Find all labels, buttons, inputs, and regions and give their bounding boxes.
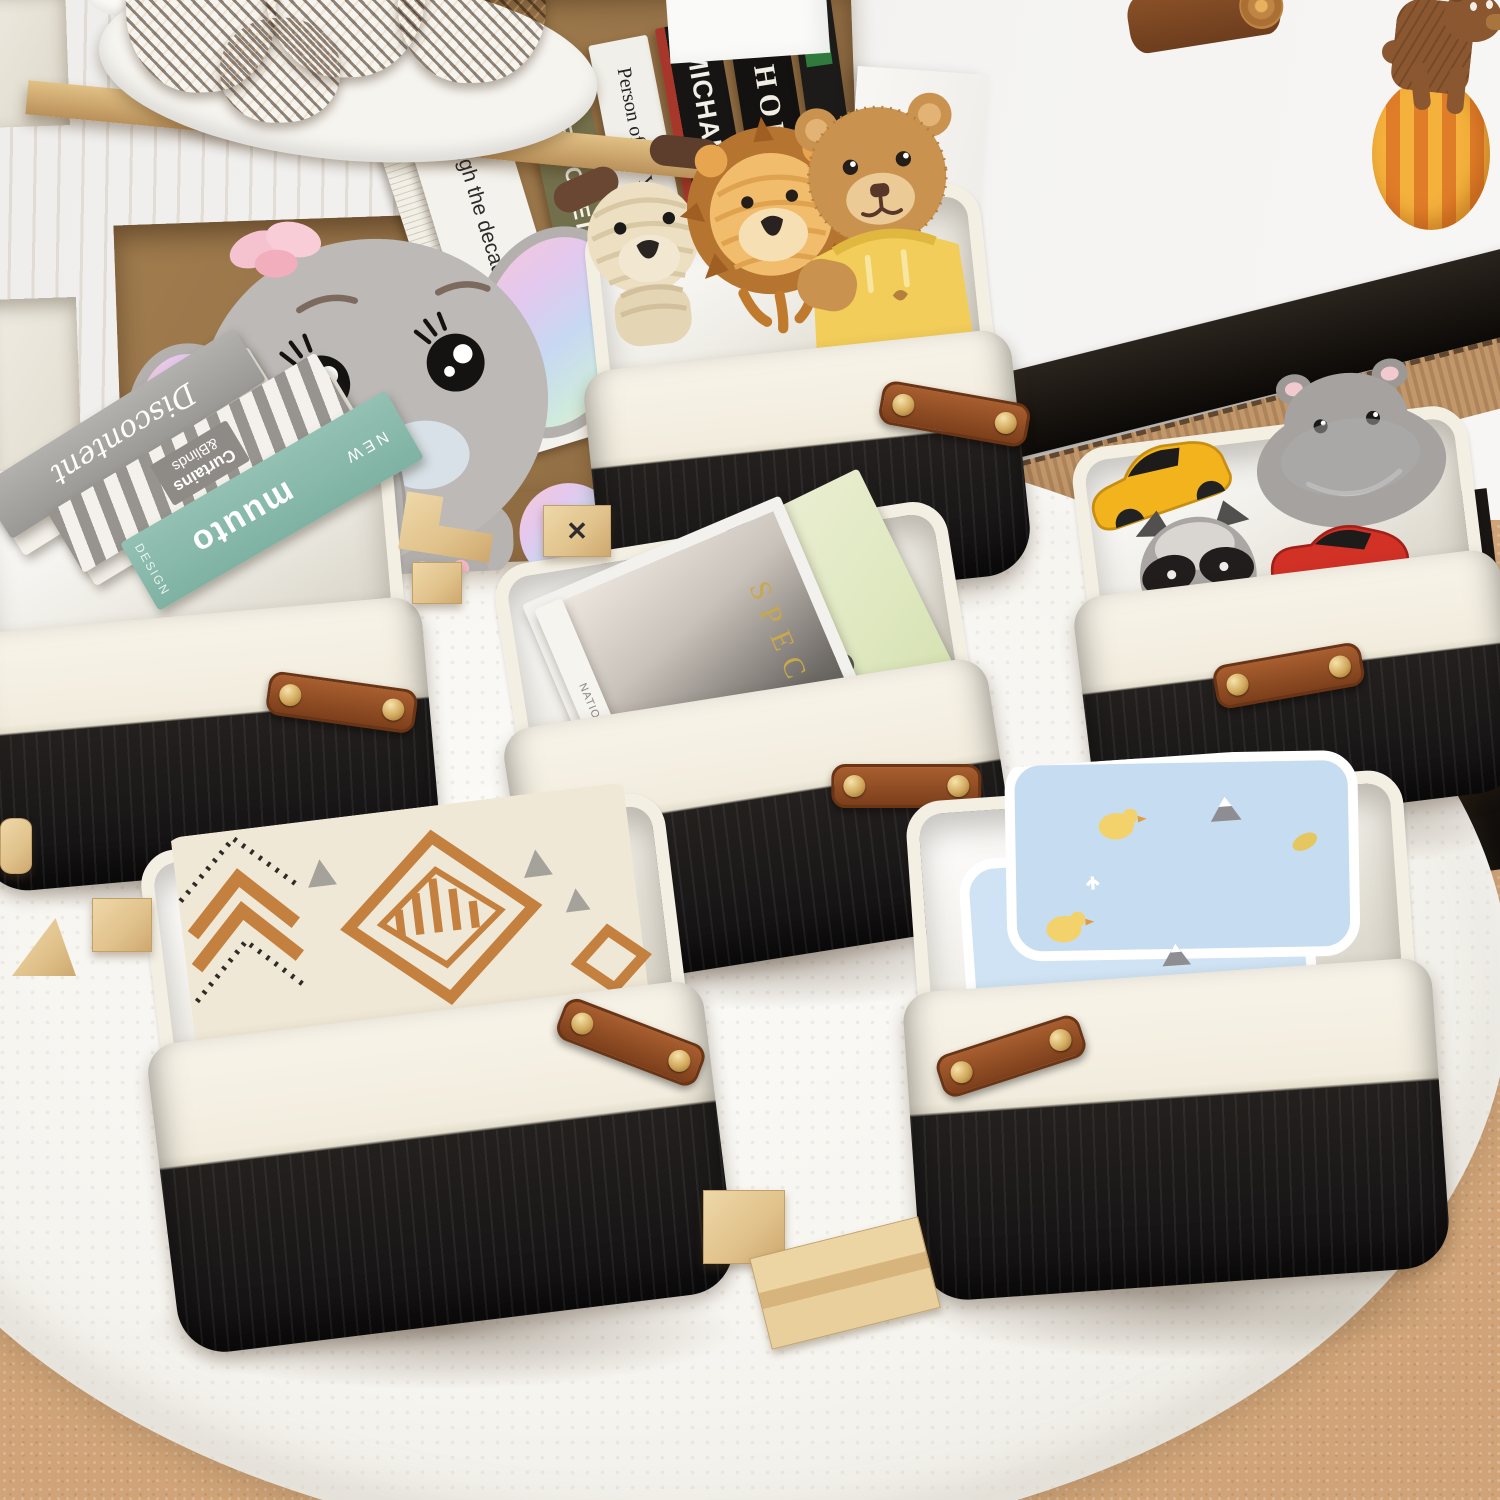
bear-eye [1486,0,1493,9]
x-stamp-glyph: ✕ [566,516,588,547]
wooden-block-x-stamp: ✕ [543,505,611,557]
playroom-scene: Jazz through the decades TASCHEN THE HOT… [0,0,1500,1500]
wooden-block-square [412,562,462,604]
handle-rivet [993,410,1018,435]
storage-basket-blanket-blue [888,767,1452,1303]
handle-rivet [1047,1026,1075,1054]
white-box [661,0,830,64]
handle-rivet [278,683,303,708]
muuto-new-tag: NEW [339,427,391,467]
handle-rivet [948,1058,976,1086]
bear-snout [1486,14,1500,30]
handle-rivet [665,1047,693,1075]
bear-eye [1470,2,1477,11]
wooden-block-cube [92,898,152,952]
basket-front [901,957,1451,1303]
teddy-bear-yellow-hoodie [759,80,1006,372]
handle-rivet [843,775,865,797]
striped-ball-decal [1372,78,1490,230]
wooden-block-cylinder [0,818,32,874]
handle-rivet [891,392,916,417]
handle-rivet [1225,672,1250,697]
pinecone [218,16,342,125]
handle-rivet [381,697,406,722]
handle-rivet [1327,654,1352,679]
storage-basket-blanket-aztec [121,788,738,1357]
handle-rivet [568,1009,596,1037]
